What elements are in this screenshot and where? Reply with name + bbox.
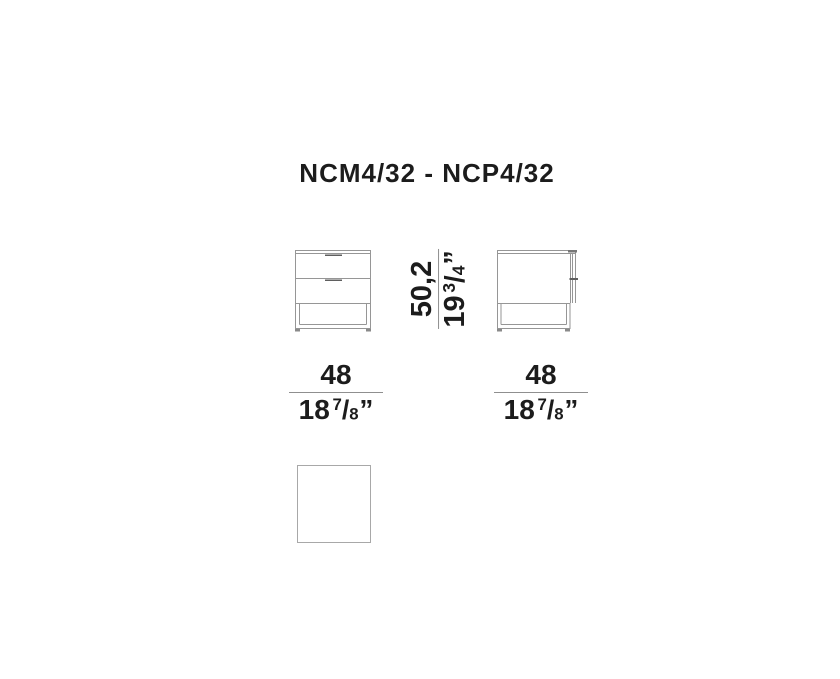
depth-dimension: 48 187/8” bbox=[494, 363, 588, 422]
depth-inch-int: 18 bbox=[504, 394, 535, 425]
side-view-drawing bbox=[496, 249, 580, 333]
width-frac-denominator: 8 bbox=[349, 404, 358, 423]
inch-mark: ” bbox=[359, 394, 373, 425]
depth-inch-value: 187/8” bbox=[494, 393, 588, 422]
depth-frac-numerator: 7 bbox=[537, 395, 546, 414]
depth-cm-value: 48 bbox=[494, 363, 588, 393]
foot-glides bbox=[497, 329, 570, 331]
depth-frac-denominator: 8 bbox=[554, 404, 563, 423]
height-inch-value: 193/4” bbox=[439, 249, 468, 329]
height-cm-value: 50,2 bbox=[410, 249, 439, 329]
front-view-drawing bbox=[295, 249, 372, 333]
product-dimension-sheet: NCM4/32 - NCP4/32 bbox=[0, 0, 840, 679]
width-inch-value: 187/8” bbox=[289, 393, 383, 422]
fraction-slash: / bbox=[439, 275, 470, 283]
width-frac-numerator: 7 bbox=[332, 395, 341, 414]
height-inch-int: 19 bbox=[439, 295, 471, 327]
width-cm-value: 48 bbox=[289, 363, 383, 393]
top-view-drawing bbox=[297, 465, 371, 543]
page-title: NCM4/32 - NCP4/32 bbox=[299, 158, 554, 189]
inch-mark: ” bbox=[439, 250, 471, 265]
inch-mark: ” bbox=[564, 394, 578, 425]
height-dimension: 50,2 193/4” bbox=[410, 249, 468, 329]
height-frac-denominator: 4 bbox=[448, 266, 468, 276]
top-edge-cap bbox=[568, 250, 577, 252]
height-frac-numerator: 3 bbox=[439, 283, 459, 293]
drawer-handle-marks bbox=[570, 278, 579, 280]
foot-glides bbox=[295, 329, 371, 331]
drawer-handle-marks bbox=[325, 254, 342, 281]
width-inch-int: 18 bbox=[299, 394, 330, 425]
width-dimension: 48 187/8” bbox=[289, 363, 383, 422]
